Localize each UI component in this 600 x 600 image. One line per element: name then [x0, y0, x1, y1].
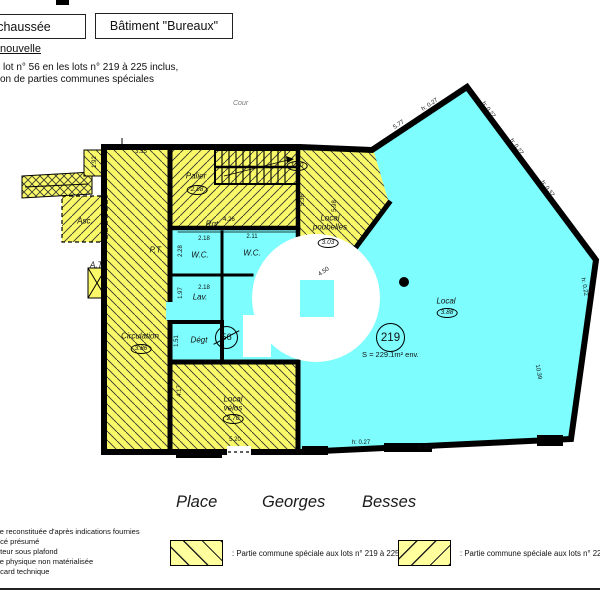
- floor-plan-page: chaussée Bâtiment "Bureaux" nouvelle lot…: [0, 0, 600, 600]
- dimension-label: 2.18: [198, 236, 210, 242]
- height-oval-palier: 2.88: [187, 185, 208, 195]
- room-label-local-poubelles-2: poubelles: [313, 223, 347, 232]
- lot-56-circle: 56: [215, 326, 238, 349]
- bottom-rule: [0, 588, 600, 590]
- legend-note: ite physique non matérialisée: [0, 557, 93, 566]
- room-label-local-poubelles-1: Local: [320, 214, 339, 223]
- room-label-circulation: Circulation: [121, 332, 159, 341]
- room-label-at: A.T.: [90, 261, 104, 270]
- room-label-pt: P.T.: [150, 246, 163, 255]
- circulation-area: [104, 147, 170, 455]
- lot-219-circle: 219: [376, 323, 405, 352]
- street-name-place: Place: [176, 493, 217, 512]
- legend-note: ite reconstituée d'après indications fou…: [0, 527, 140, 536]
- top-tick: [56, 0, 69, 5]
- legend-note: acé présumé: [0, 537, 39, 546]
- legend-swatch-220-225: [398, 540, 451, 566]
- dimension-label: h: 0.27: [418, 445, 436, 451]
- height-oval-circulation: 3.86: [131, 344, 152, 354]
- dimension-label: 2.18: [198, 285, 210, 291]
- room-label-rgt: Rgt.: [206, 220, 221, 229]
- dimension-label: 4.17: [177, 385, 183, 397]
- legend-label-220-225: : Partie commune spéciale aux lots n° 22…: [460, 549, 600, 558]
- height-oval-local: 3.88: [437, 308, 458, 318]
- height-oval-velos: 2.70: [223, 414, 244, 424]
- room-label-palier: Palier: [186, 172, 206, 181]
- dimension-label: 5.98: [332, 200, 338, 212]
- legend-note: acard technique: [0, 567, 49, 576]
- street-name-georges: Georges: [262, 493, 325, 512]
- height-oval-stairs: 1.90: [287, 161, 308, 171]
- room-label-local-velos-2: vélos: [224, 404, 243, 413]
- room-label-local-velos-1: Local: [223, 395, 242, 404]
- legend-swatch-219-225: [170, 540, 223, 566]
- dimension-label: 5.36: [300, 194, 306, 206]
- dimension-label: 4.26: [223, 217, 235, 223]
- room-label-wc-1: W.C.: [191, 251, 208, 260]
- dimension-label: 5.20: [229, 437, 241, 443]
- street-name-besses: Besses: [362, 493, 416, 512]
- dimension-label: 2.28: [178, 245, 184, 257]
- legend-note: uteur sous plafond: [0, 547, 58, 556]
- dimension-label: 1.92: [92, 156, 98, 168]
- room-label-ascenseur: Asc.: [77, 217, 93, 226]
- room-label-degt: Dégt: [191, 336, 208, 345]
- room-label-local: Local: [436, 297, 455, 306]
- dimension-label: 2.11: [246, 234, 257, 240]
- dimension-label: 3.55: [135, 149, 147, 155]
- dimension-label: 1.51: [174, 335, 180, 347]
- lot-219-number: 219: [381, 332, 400, 344]
- dimension-label: 1.97: [178, 287, 184, 299]
- room-label-lav: Lav.: [193, 293, 208, 302]
- dimension-label: h: 0.27: [352, 440, 370, 446]
- height-oval-poubelles: 3.03: [318, 238, 339, 248]
- legend-label-219-225: : Partie commune spéciale aux lots n° 21…: [232, 549, 421, 558]
- room-label-wc-2: W.C.: [243, 249, 260, 258]
- column-dot: [399, 277, 409, 287]
